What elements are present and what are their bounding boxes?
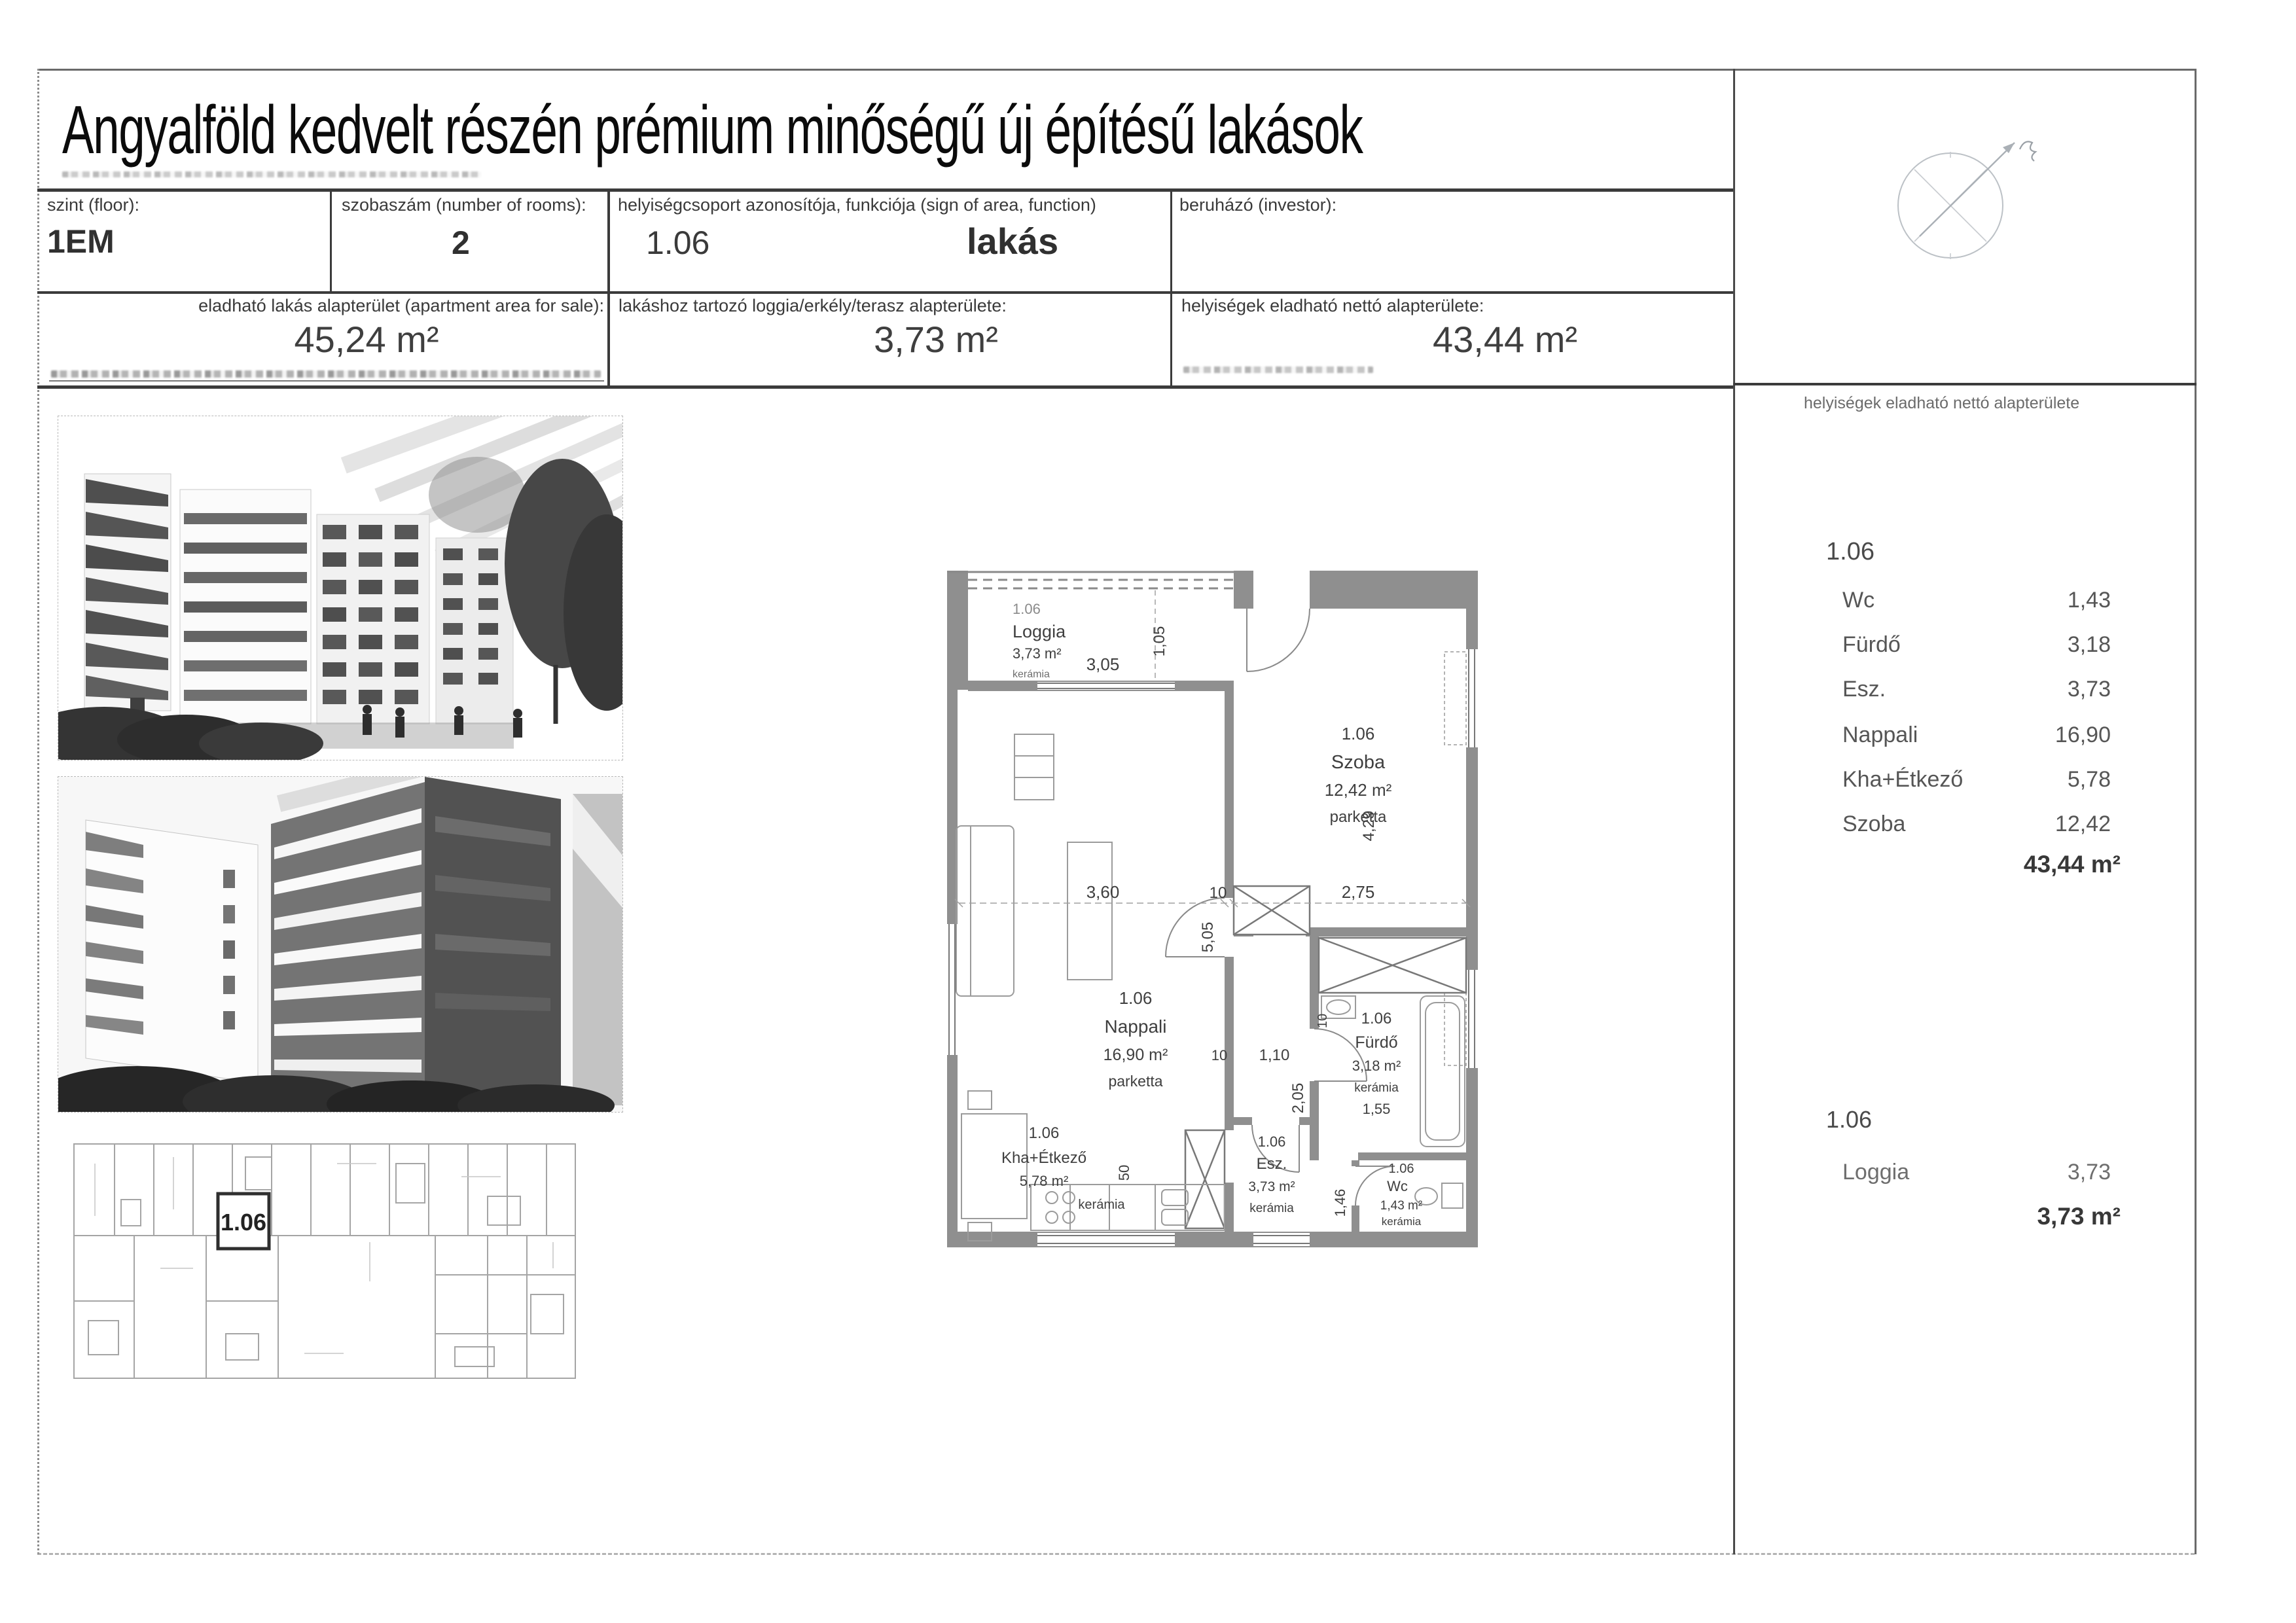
svg-text:1.06: 1.06 — [1258, 1133, 1286, 1150]
svg-text:Loggia: Loggia — [1013, 622, 1066, 641]
svg-text:4,29: 4,29 — [1360, 811, 1378, 842]
room-label-furdo: 1.06 Fürdő 3,18 m² kerámia 1,55 — [1352, 1010, 1401, 1117]
svg-text:Fürdő: Fürdő — [1355, 1033, 1397, 1052]
apartment-area-label: eladható lakás alapterület (apartment ar… — [108, 296, 604, 316]
right-panel-total: 43,44 m² — [1898, 851, 2121, 878]
room-area: 3,73 — [2068, 677, 2111, 702]
svg-text:Nappali: Nappali — [1105, 1016, 1167, 1037]
room-area: 5,78 — [2068, 767, 2111, 793]
room-area-row: Esz. 3,73 — [1836, 677, 2111, 708]
room-area: 3,73 — [2068, 1160, 2111, 1185]
loggia-area-value: 3,73 m² — [766, 318, 1106, 361]
page-border-right — [2195, 69, 2197, 1554]
far-building — [436, 538, 513, 724]
right-panel-header: helyiségek eladható nettó alapterülete — [1804, 394, 2079, 413]
svg-text:kerámia: kerámia — [1013, 669, 1050, 680]
svg-text:Szoba: Szoba — [1331, 752, 1386, 773]
room-area-row: Fürdő 3,18 — [1836, 632, 2111, 664]
svg-text:Wc: Wc — [1387, 1178, 1408, 1194]
svg-text:1,10: 1,10 — [1259, 1046, 1290, 1064]
room-name: Loggia — [1842, 1160, 1909, 1185]
page-border-bottom — [37, 1553, 2195, 1555]
white-building — [86, 820, 258, 1083]
unit-function-value: lakás — [967, 220, 1058, 262]
svg-text:1,43 m²: 1,43 m² — [1380, 1199, 1422, 1213]
building-rendering-1 — [58, 416, 623, 760]
svg-text:Kha+Étkező: Kha+Étkező — [1001, 1149, 1086, 1167]
svg-text:2,05: 2,05 — [1289, 1083, 1307, 1114]
svg-text:1.06: 1.06 — [1029, 1124, 1060, 1142]
right-panel-loggia-unit-id: 1.06 — [1826, 1106, 1872, 1133]
loggia-area-row: Loggia 3,73 — [1836, 1160, 2111, 1191]
floor-overview-plan: 1.06 — [69, 1137, 586, 1406]
svg-text:3,18 m²: 3,18 m² — [1352, 1058, 1401, 1074]
right-panel-loggia-total: 3,73 m² — [1898, 1203, 2121, 1230]
table-line — [37, 188, 1733, 192]
rooms-count-value: 2 — [452, 224, 470, 262]
svg-text:1.06: 1.06 — [1361, 1010, 1392, 1027]
svg-text:parketta: parketta — [1330, 808, 1387, 826]
svg-text:12,42 m²: 12,42 m² — [1325, 780, 1392, 800]
room-area-row: Kha+Étkező 5,78 — [1836, 767, 2111, 798]
svg-text:2,75: 2,75 — [1342, 882, 1375, 902]
svg-text:1,46: 1,46 — [1332, 1189, 1348, 1217]
room-label-wc: 1.06 Wc 1,43 m² kerámia 1,46 — [1332, 1162, 1422, 1228]
apartment-area-value: 45,24 m² — [196, 318, 537, 361]
room-area: 12,42 — [2055, 811, 2111, 837]
table-line — [1733, 383, 2197, 385]
unit-label: helyiségcsoport azonosítója, funkciója (… — [618, 195, 1096, 215]
room-name: Wc — [1842, 588, 1874, 613]
loggia-area-label: lakáshoz tartozó loggia/erkély/terasz al… — [619, 296, 1007, 316]
svg-text:3,73 m²: 3,73 m² — [1013, 645, 1062, 662]
right-building-mass — [425, 777, 622, 1105]
left-tower — [84, 474, 171, 720]
net-area-label: helyiségek eladható nettó alapterülete: — [1181, 296, 1484, 316]
table-line — [330, 188, 332, 294]
svg-text:50: 50 — [1116, 1165, 1132, 1181]
room-label-kha: 1.06 Kha+Étkező 5,78 m² kerámia 50 — [1001, 1124, 1132, 1212]
svg-text:16,90 m²: 16,90 m² — [1103, 1046, 1168, 1064]
svg-text:kerámia: kerámia — [1078, 1198, 1125, 1212]
compass-rose — [1898, 141, 2036, 259]
svg-text:Esz.: Esz. — [1257, 1155, 1287, 1173]
loggia-railing — [947, 572, 1234, 588]
fine-print-line — [51, 370, 601, 378]
table-line — [607, 188, 610, 389]
room-name: Esz. — [1842, 677, 1886, 702]
right-building — [317, 514, 429, 724]
unit-id-value: 1.06 — [646, 224, 709, 262]
fine-print-line — [1183, 366, 1373, 373]
room-area: 1,43 — [2068, 588, 2111, 613]
svg-text:parketta: parketta — [1108, 1073, 1162, 1090]
svg-text:10: 10 — [1211, 1047, 1227, 1063]
room-area-row: Nappali 16,90 — [1836, 722, 2111, 754]
svg-text:3,60: 3,60 — [1086, 882, 1120, 902]
svg-text:1.06: 1.06 — [1389, 1162, 1414, 1176]
floor-overview-art: 1.06 — [69, 1137, 586, 1406]
building-rendering-2-art — [58, 777, 622, 1112]
room-name: Szoba — [1842, 811, 1905, 837]
fine-print-line — [62, 171, 481, 177]
building-rendering-2 — [58, 776, 623, 1113]
compass-icon — [1885, 128, 2075, 285]
page-border-top — [37, 69, 2197, 71]
page-title: Angyalföld kedvelt részén prémium minősé… — [62, 92, 1362, 169]
room-area: 16,90 — [2055, 722, 2111, 748]
svg-text:kerámia: kerámia — [1382, 1215, 1422, 1228]
room-name: Fürdő — [1842, 632, 1901, 658]
room-area-row: Szoba 12,42 — [1836, 811, 2111, 843]
unit-floor-plan: 1.06 Loggia 3,73 m² kerámia 3,05 1,05 1.… — [939, 571, 1478, 1247]
center-building — [271, 782, 425, 1105]
svg-text:3,05: 3,05 — [1086, 654, 1120, 674]
svg-text:1.06: 1.06 — [1013, 601, 1041, 617]
svg-text:kerámia: kerámia — [1354, 1081, 1399, 1095]
fine-print-underline — [49, 380, 604, 382]
svg-text:1,55: 1,55 — [1363, 1101, 1391, 1117]
mid-building — [180, 490, 311, 724]
svg-text:5,05: 5,05 — [1199, 922, 1217, 953]
table-line — [1170, 188, 1172, 389]
room-name: Nappali — [1842, 722, 1918, 748]
svg-text:1.06: 1.06 — [1119, 988, 1153, 1008]
room-label-szoba: 1.06 Szoba 12,42 m² parketta 2,75 4,29 — [1325, 724, 1392, 902]
svg-text:1,05: 1,05 — [1151, 626, 1168, 657]
table-line — [37, 385, 1733, 389]
room-area-row: Wc 1,43 — [1836, 588, 2111, 619]
svg-text:kerámia: kerámia — [1249, 1202, 1294, 1215]
panel-divider-line — [1733, 69, 1735, 1554]
svg-text:1.06: 1.06 — [1342, 724, 1375, 743]
overview-unit-label: 1.06 — [221, 1209, 266, 1236]
room-label-esz: 1.06 Esz. 3,73 m² kerámia — [1248, 1133, 1295, 1215]
floor-label: szint (floor): — [47, 195, 139, 215]
room-label-loggia: 1.06 Loggia 3,73 m² kerámia 3,05 1,05 — [1013, 601, 1168, 680]
net-area-value: 43,44 m² — [1250, 318, 1577, 361]
svg-text:5,78 m²: 5,78 m² — [1020, 1173, 1069, 1189]
room-name: Kha+Étkező — [1842, 767, 1963, 793]
room-label-nappali: 1.06 Nappali 16,90 m² parketta 3,60 10 5… — [1086, 882, 1227, 1090]
building-rendering-1-art — [58, 416, 622, 760]
unit-floor-plan-art: 1.06 Loggia 3,73 m² kerámia 3,05 1,05 1.… — [939, 571, 1478, 1247]
overview-unit-highlight: 1.06 — [218, 1194, 269, 1249]
rooms-count-label: szobaszám (number of rooms): — [342, 195, 586, 215]
room-area: 3,18 — [2068, 632, 2111, 658]
apartment-datasheet: Angyalföld kedvelt részén prémium minősé… — [0, 0, 2296, 1623]
investor-label: beruházó (investor): — [1179, 195, 1336, 215]
svg-text:10: 10 — [1210, 884, 1227, 902]
table-line — [37, 291, 1733, 294]
right-panel-unit-id: 1.06 — [1826, 538, 1874, 566]
svg-text:10: 10 — [1316, 1014, 1330, 1028]
svg-text:3,73 m²: 3,73 m² — [1248, 1179, 1295, 1194]
floor-value: 1EM — [47, 223, 115, 260]
